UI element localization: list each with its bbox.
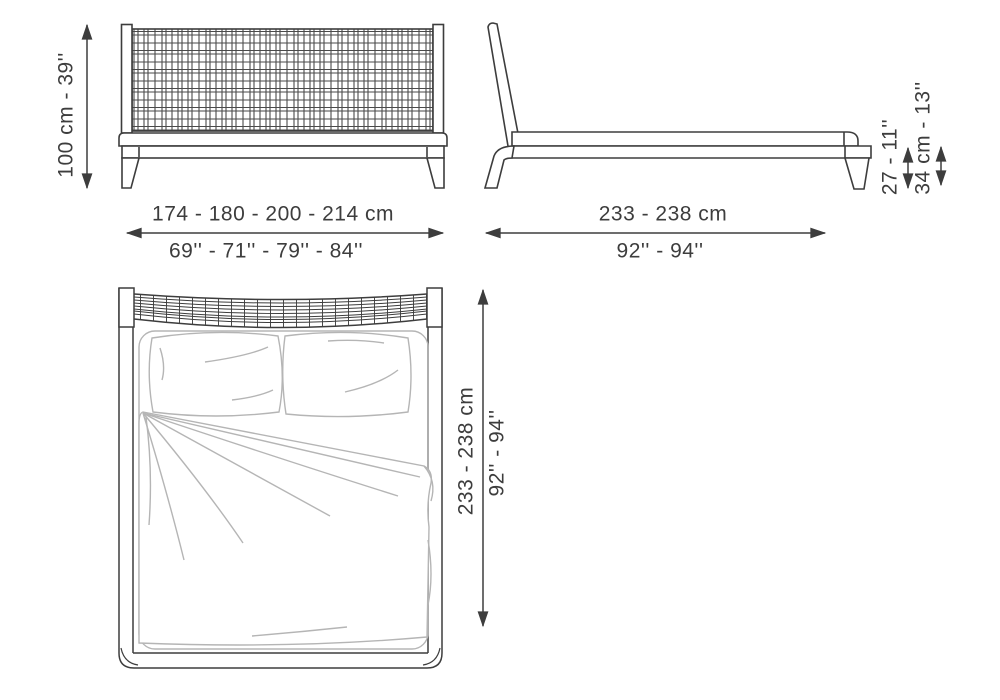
front-height-label: 100 cm - 39'' [56,52,77,177]
technical-drawing [0,0,1000,700]
bed-dimension-diagram: 100 cm - 39'' 174 - 180 - 200 - 214 cm 6… [0,0,1000,700]
bed-top-view [119,288,442,668]
top-length-in-label: 92'' - 94'' [487,410,508,497]
side-platform-height-label: 34 cm - 13'' [913,81,934,194]
top-length-cm-label: 233 - 238 cm [456,387,477,516]
front-width-in-label: 69'' - 71'' - 79'' - 84'' [169,241,363,262]
side-length-in-label: 92'' - 94'' [617,241,704,262]
pillows-sketch [149,332,411,416]
bed-side-view [485,23,871,189]
bed-front-view [119,25,447,189]
side-rail-height-label: 27 - 11'' [880,119,901,195]
side-length-cm-label: 233 - 238 cm [599,204,728,225]
front-width-cm-label: 174 - 180 - 200 - 214 cm [152,204,394,225]
